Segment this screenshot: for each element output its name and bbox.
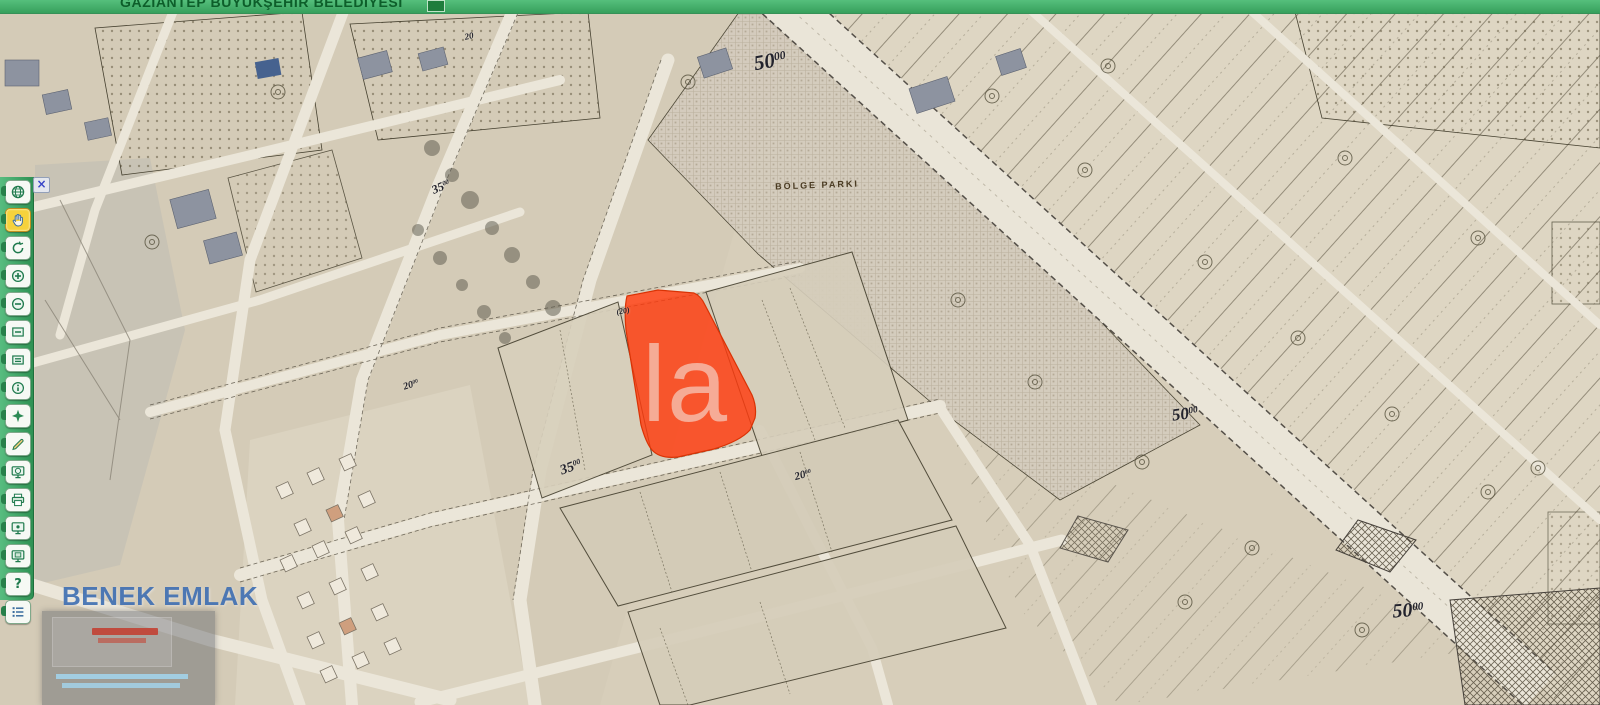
toolbar-button-locate[interactable] bbox=[5, 516, 31, 540]
extent-forward-icon bbox=[10, 352, 26, 368]
toolbar-button-select[interactable] bbox=[5, 404, 31, 428]
toolbar-button-pan[interactable] bbox=[5, 208, 31, 232]
watermark-text-line bbox=[56, 674, 188, 679]
watermark-text-line bbox=[98, 638, 146, 643]
legend-icon bbox=[10, 604, 26, 620]
screen-pin-icon bbox=[10, 520, 26, 536]
toolbar-button-zoom-in[interactable] bbox=[5, 264, 31, 288]
toolbar-button-help[interactable]: ? bbox=[5, 572, 31, 596]
watermark-text-line bbox=[92, 628, 158, 635]
agency-watermark-brand: BENEK EMLAK bbox=[62, 581, 258, 612]
screen-globe-icon bbox=[10, 464, 26, 480]
screen-copy-icon bbox=[10, 548, 26, 564]
close-toolbar-button[interactable]: × bbox=[33, 177, 50, 193]
zoom-in-icon bbox=[10, 268, 26, 284]
toolbar-button-previous-extent[interactable] bbox=[5, 320, 31, 344]
hand-icon bbox=[10, 212, 26, 228]
zoom-out-icon bbox=[10, 296, 26, 312]
toolbar-button-overview-map[interactable] bbox=[5, 460, 31, 484]
question-icon: ? bbox=[14, 578, 22, 591]
map-toolbar: ? bbox=[0, 177, 34, 600]
gis-viewer-window: 5000500050003500350020(20)20002000BÖLGE … bbox=[0, 0, 1600, 705]
toolbar-button-zoom-out[interactable] bbox=[5, 292, 31, 316]
select-star-icon bbox=[10, 408, 26, 424]
toolbar-button-legend[interactable] bbox=[5, 600, 31, 624]
toolbar-button-full-extent[interactable] bbox=[5, 180, 31, 204]
extent-back-icon bbox=[10, 324, 26, 340]
globe-icon bbox=[10, 184, 26, 200]
info-icon bbox=[10, 380, 26, 396]
agency-watermark-card bbox=[42, 611, 215, 705]
header-button[interactable] bbox=[427, 0, 445, 12]
toolbar-button-snapshot[interactable] bbox=[5, 544, 31, 568]
toolbar-button-identify[interactable] bbox=[5, 376, 31, 400]
watermark-text-line bbox=[62, 683, 180, 688]
toolbar-button-print[interactable] bbox=[5, 488, 31, 512]
toolbar-button-measure[interactable] bbox=[5, 432, 31, 456]
print-icon bbox=[10, 492, 26, 508]
toolbar-button-refresh[interactable] bbox=[5, 236, 31, 260]
toolbar-button-next-extent[interactable] bbox=[5, 348, 31, 372]
measure-icon bbox=[10, 436, 26, 452]
title-bar: GAZİANTEP BÜYÜKŞEHİR BELEDİYESİ bbox=[0, 0, 1600, 14]
refresh-icon bbox=[10, 240, 26, 256]
municipality-title: GAZİANTEP BÜYÜKŞEHİR BELEDİYESİ bbox=[120, 0, 403, 10]
